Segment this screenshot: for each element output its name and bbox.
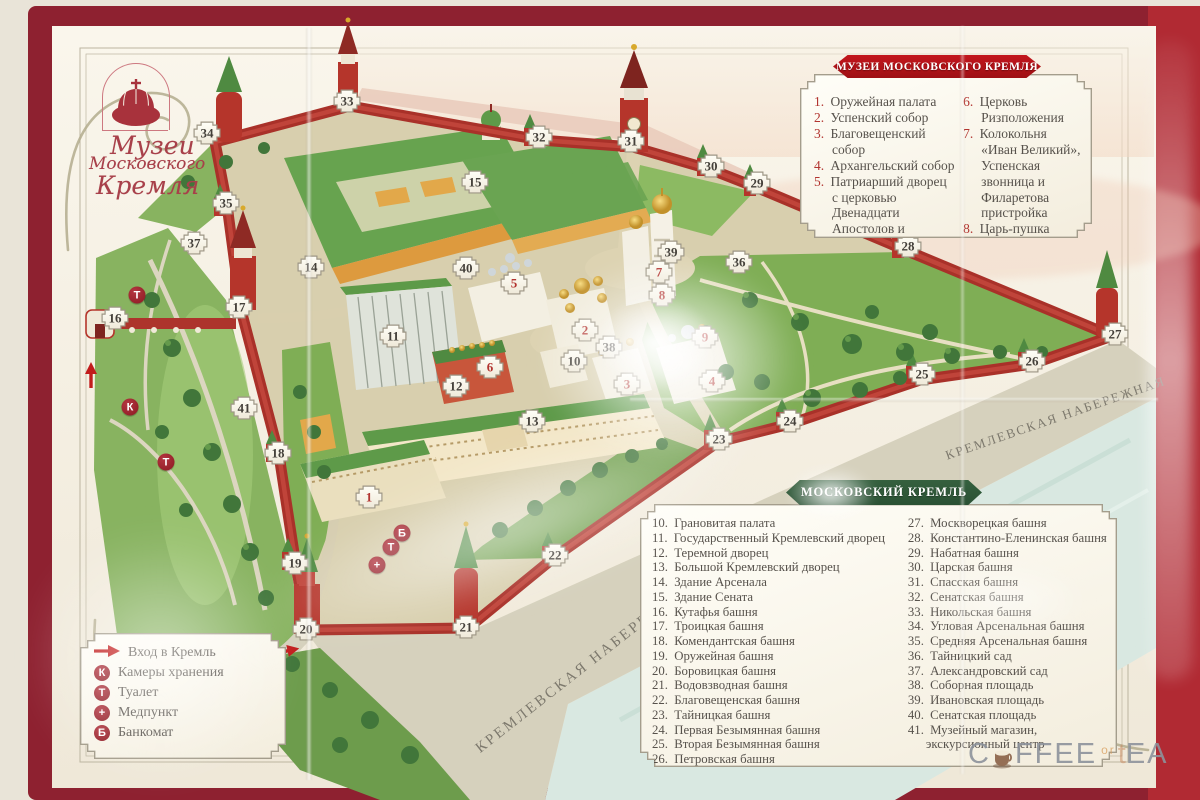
map-marker-21: 21	[453, 616, 480, 639]
legend-item: 6. Церковь Ризположения	[963, 94, 1082, 126]
medpoint-label: Медпункт	[118, 705, 178, 721]
legend-item: 22. Благовещенская башня	[652, 693, 902, 708]
legend-item: 16. Кутафья башня	[652, 605, 902, 620]
legend-item: 32. Сенатская башня	[908, 590, 1109, 605]
lockers-icon: К	[94, 665, 110, 681]
map-marker-33: 33	[334, 90, 361, 113]
map-marker-32: 32	[526, 126, 553, 149]
legend-item: 27. Москворецкая башня	[908, 516, 1109, 531]
map-marker-6: 6	[477, 356, 504, 379]
watermark-t: t	[1118, 738, 1128, 771]
map-marker-10: 10	[561, 350, 588, 373]
museums-logo: Музеи Московского Кремля	[80, 55, 330, 215]
map-marker-15: 15	[462, 171, 489, 194]
legend-item: 21. Водовзводная башня	[652, 678, 902, 693]
logo-line-3: Кремля	[96, 171, 199, 200]
medpoint-icon: +	[94, 705, 110, 721]
atm-icon: Б	[94, 725, 110, 741]
legend-item: 1. Оружейная палата	[814, 94, 955, 110]
legend-toilet-row: Т Туалет	[94, 685, 278, 701]
legend-item: 24. Первая Безымянная башня	[652, 723, 902, 738]
map-marker-14: 14	[298, 256, 325, 279]
legend-item: 36. Тайницкий сад	[908, 649, 1109, 664]
kremlin-legend-box: 10. Грановитая палата11. Государственный…	[640, 504, 1117, 767]
map-marker-4: 4	[699, 370, 726, 393]
legend-item: 31. Спасская башня	[908, 575, 1109, 590]
map-marker-23: 23	[706, 428, 733, 451]
legend-item: 23. Тайницкая башня	[652, 708, 902, 723]
watermark-ffee: FFEE	[1015, 738, 1097, 771]
legend-item: 26. Петровская башня	[652, 752, 902, 767]
legend-item: 18. Комендантская башня	[652, 634, 902, 649]
museums-legend-box: 1. Оружейная палата2. Успенский собор3. …	[800, 74, 1092, 238]
legend-item: 10. Грановитая палата	[652, 516, 902, 531]
legend-item: 17. Троицкая башня	[652, 619, 902, 634]
legend-item: 8. Царь-пушка	[963, 221, 1082, 237]
legend-item: 13. Большой Кремлевский дворец	[652, 560, 902, 575]
map-service-marker-Т: Т	[158, 454, 175, 471]
legend-item: 14. Здание Арсенала	[652, 575, 902, 590]
legend-item: 15. Здание Сената	[652, 590, 902, 605]
legend-item: 20. Боровицкая башня	[652, 664, 902, 679]
map-marker-5: 5	[501, 272, 528, 295]
map-marker-19: 19	[282, 552, 309, 575]
map-service-marker-К: К	[122, 399, 139, 416]
map-marker-17: 17	[226, 296, 253, 319]
map-marker-41: 41	[231, 397, 258, 420]
map-entrance-arrow-1	[84, 362, 102, 388]
watermark-tea: EA	[1126, 738, 1169, 771]
legend-item: 39. Ивановская площадь	[908, 693, 1109, 708]
legend-item: 28. Константино-Еленинская башня	[908, 531, 1109, 546]
map-marker-2: 2	[572, 319, 599, 342]
legend-item: 12. Теремной дворец	[652, 546, 902, 561]
kremlin-legend-col1: 10. Грановитая палата11. Государственный…	[652, 516, 902, 767]
photo-of-kremlin-map: 1234567891011121314151617181920212223242…	[0, 0, 1200, 800]
map-marker-1: 1	[356, 486, 383, 509]
map-marker-24: 24	[777, 410, 804, 433]
map-service-marker-Т: Т	[383, 539, 400, 556]
legend-item: 2. Успенский собор	[814, 110, 955, 126]
map-marker-9: 9	[692, 326, 719, 349]
coffee-tea-watermark: C FFEE or t EA	[968, 738, 1169, 771]
map-marker-16: 16	[102, 307, 129, 330]
map-marker-27: 27	[1102, 323, 1129, 346]
map-marker-39: 39	[658, 241, 685, 264]
map-marker-18: 18	[265, 442, 292, 465]
map-marker-31: 31	[618, 130, 645, 153]
kremlin-legend-banner: МОСКОВСКИЙ КРЕМЛЬ	[786, 480, 982, 505]
map-marker-3: 3	[614, 373, 641, 396]
toilet-icon: Т	[94, 685, 110, 701]
watermark-c: C	[968, 738, 991, 771]
legend-medpoint-row: + Медпункт	[94, 705, 278, 721]
map-marker-40: 40	[453, 257, 480, 280]
map-marker-38: 38	[596, 336, 623, 359]
watermark-or: or	[1101, 743, 1116, 757]
legend-item: 34. Угловая Арсенальная башня	[908, 619, 1109, 634]
map-service-marker-Т: Т	[129, 287, 146, 304]
map-marker-25: 25	[909, 363, 936, 386]
toilet-label: Туалет	[118, 685, 158, 701]
legend-item: 40. Сенатская площадь	[908, 708, 1109, 723]
legend-atm-row: Б Банкомат	[94, 725, 278, 741]
legend-lockers-row: К Камеры хранения	[94, 665, 278, 681]
map-marker-20: 20	[293, 618, 320, 641]
map-marker-11: 11	[380, 325, 407, 348]
legend-item: 38. Соборная площадь	[908, 678, 1109, 693]
legend-item: 29. Набатная башня	[908, 546, 1109, 561]
entrance-arrow-icon	[94, 644, 120, 662]
legend-entrance-row: Вход в Кремль	[94, 645, 278, 661]
map-service-marker-Б: Б	[394, 525, 411, 542]
map-marker-7: 7	[646, 261, 673, 284]
map-marker-37: 37	[181, 232, 208, 255]
legend-item: 37. Александровский сад	[908, 664, 1109, 679]
map-marker-13: 13	[519, 410, 546, 433]
map-marker-29: 29	[744, 172, 771, 195]
monomakh-cap-icon	[110, 77, 162, 127]
legend-item: 11. Государственный Кремлевский дворец	[652, 531, 902, 546]
legend-item: 33. Никольская башня	[908, 605, 1109, 620]
map-marker-36: 36	[726, 251, 753, 274]
legend-item: 35. Средняя Арсенальная башня	[908, 634, 1109, 649]
legend-item: 4. Архангельский собор	[814, 158, 955, 174]
map-marker-22: 22	[542, 544, 569, 567]
map-marker-12: 12	[443, 375, 470, 398]
map-marker-26: 26	[1019, 350, 1046, 373]
legend-item: 30. Царская башня	[908, 560, 1109, 575]
museums-legend-banner: МУЗЕИ МОСКОВСКОГО КРЕМЛЯ	[833, 55, 1041, 78]
map-service-marker-+: +	[369, 557, 386, 574]
legend-item: 19. Оружейная башня	[652, 649, 902, 664]
map-marker-30: 30	[698, 155, 725, 178]
legend-item: 7. Колокольня «Иван Великий», Успенская …	[963, 126, 1082, 222]
lockers-label: Камеры хранения	[118, 665, 224, 681]
entrance-label: Вход в Кремль	[128, 645, 216, 661]
atm-label: Банкомат	[118, 725, 173, 741]
services-legend-box: Вход в Кремль К Камеры хранения Т Туалет…	[80, 633, 286, 759]
kremlin-legend-col2: 27. Москворецкая башня28. Константино-Ел…	[908, 516, 1109, 767]
legend-item: 3. Благовещенский собор	[814, 126, 955, 158]
legend-item: 25. Вторая Безымянная башня	[652, 737, 902, 752]
map-marker-8: 8	[649, 284, 676, 307]
coffee-cup-icon	[992, 745, 1014, 769]
